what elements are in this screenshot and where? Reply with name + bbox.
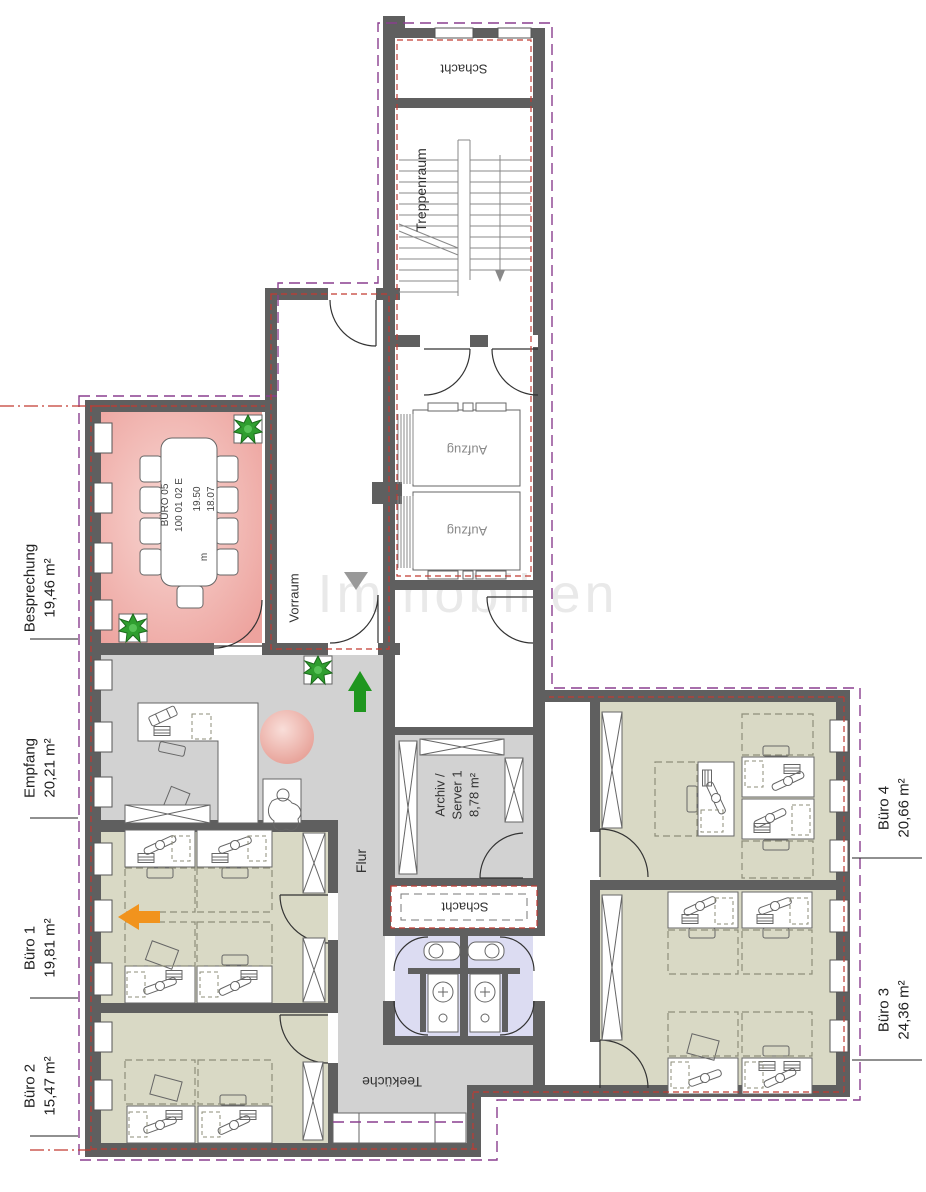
chair <box>140 518 162 544</box>
chair <box>177 586 203 608</box>
room-label-aufzug-2: Aufzug <box>447 524 487 539</box>
elevators <box>398 403 520 579</box>
svg-text:Büro 4: Büro 4 <box>876 786 893 830</box>
room-label-buero3: Büro 3 24,36 m² <box>852 980 922 1060</box>
stair-direction-arrow-icon <box>495 270 505 282</box>
chair <box>216 487 238 513</box>
room-label-schacht-mid: Schacht <box>441 900 488 915</box>
plant-icon <box>234 415 262 443</box>
chair <box>140 456 162 482</box>
svg-text:BÜRO 05: BÜRO 05 <box>159 483 171 526</box>
door-swing <box>424 349 470 395</box>
window <box>498 28 531 38</box>
svg-text:20,21 m²: 20,21 m² <box>42 738 59 797</box>
room-label-besprechung: Besprechung 19,46 m² <box>22 544 79 639</box>
room-label-empfang: Empfang 20,21 m² <box>22 738 79 818</box>
svg-text:Server 1: Server 1 <box>450 770 465 819</box>
svg-text:19.50: 19.50 <box>192 486 203 511</box>
svg-text:24,36 m²: 24,36 m² <box>896 980 913 1039</box>
person-figure <box>263 779 301 831</box>
room-label-buero2: Büro 2 15,47 m² <box>22 1056 79 1136</box>
plant-icon <box>304 656 332 684</box>
svg-text:19,46 m²: 19,46 m² <box>42 558 59 617</box>
room-label-buero1: Büro 1 19,81 m² <box>22 918 79 998</box>
kitchen-counter <box>333 1113 466 1143</box>
chair <box>140 487 162 513</box>
room-label-schacht-top: Schacht <box>440 62 487 77</box>
room-label-flur: Flur <box>353 849 369 873</box>
svg-text:18.07: 18.07 <box>206 486 217 511</box>
floor-plan: Immobilien <box>0 0 926 1192</box>
svg-text:19,81 m²: 19,81 m² <box>42 918 59 977</box>
svg-text:8,78 m²: 8,78 m² <box>467 772 482 817</box>
window <box>435 28 473 38</box>
svg-text:Büro 2: Büro 2 <box>22 1064 39 1108</box>
svg-text:Besprechung: Besprechung <box>22 544 39 632</box>
svg-text:Empfang: Empfang <box>22 738 39 798</box>
svg-text:15,47 m²: 15,47 m² <box>42 1056 59 1115</box>
svg-text:Büro 3: Büro 3 <box>876 988 893 1032</box>
wc-stall <box>470 974 500 1032</box>
svg-text:100 01 02 E: 100 01 02 E <box>174 478 185 532</box>
room-label-aufzug-1: Aufzug <box>447 443 487 458</box>
svg-text:m: m <box>199 553 210 561</box>
svg-text:20,66 m²: 20,66 m² <box>896 778 913 837</box>
chair <box>216 456 238 482</box>
svg-text:Büro 1: Büro 1 <box>22 926 39 970</box>
gym-ball <box>260 710 314 764</box>
chair <box>216 549 238 575</box>
room-label-treppenraum: Treppenraum <box>413 148 429 232</box>
chair <box>140 549 162 575</box>
plant-icon <box>119 614 147 642</box>
office-desk <box>742 799 814 839</box>
room-label-vorraum: Vorraum <box>287 573 302 622</box>
svg-text:Archiv /: Archiv / <box>433 773 448 817</box>
room-label-archiv: Archiv / Server 1 8,78 m² <box>433 770 482 819</box>
chair <box>216 518 238 544</box>
room-label-teekueche: Teeküche <box>362 1074 422 1090</box>
wc-stall <box>428 974 458 1032</box>
room-flur-corridor <box>338 655 385 1143</box>
room-label-buero4: Büro 4 20,66 m² <box>852 778 922 858</box>
